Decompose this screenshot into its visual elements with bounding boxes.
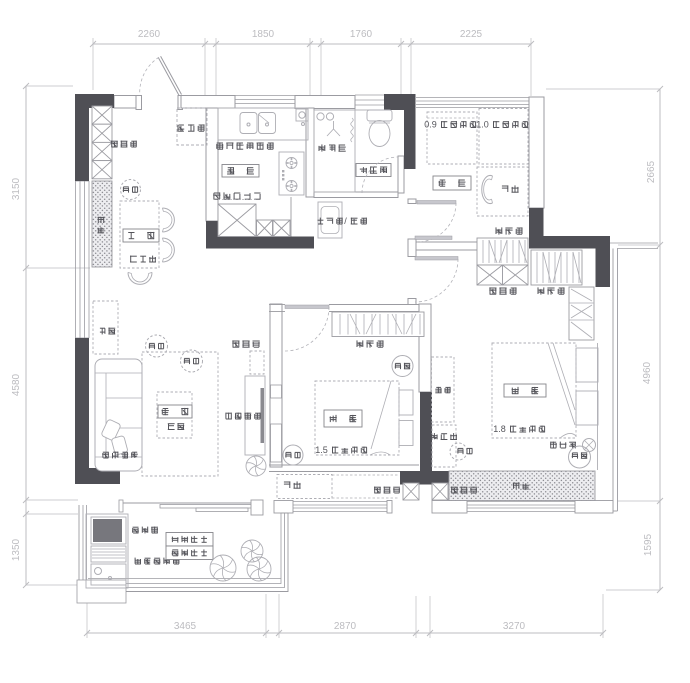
svg-text:1.8: 1.8 [493,424,506,434]
svg-text:2870: 2870 [334,621,357,632]
svg-text:3270: 3270 [503,621,526,632]
svg-text:1760: 1760 [350,29,373,40]
svg-text:3465: 3465 [174,621,197,632]
svg-text:1595: 1595 [643,533,654,556]
svg-text:3150: 3150 [11,177,22,200]
svg-text:4580: 4580 [11,373,22,396]
svg-text:4960: 4960 [642,361,653,384]
svg-text:2225: 2225 [460,29,483,40]
svg-text:1850: 1850 [252,29,275,40]
svg-text:0.9: 0.9 [424,120,437,130]
svg-text:1.5: 1.5 [315,445,328,455]
svg-text:1.0: 1.0 [476,120,489,130]
svg-text:2665: 2665 [646,160,657,183]
svg-text:2260: 2260 [138,29,161,40]
svg-text:1350: 1350 [11,538,22,561]
